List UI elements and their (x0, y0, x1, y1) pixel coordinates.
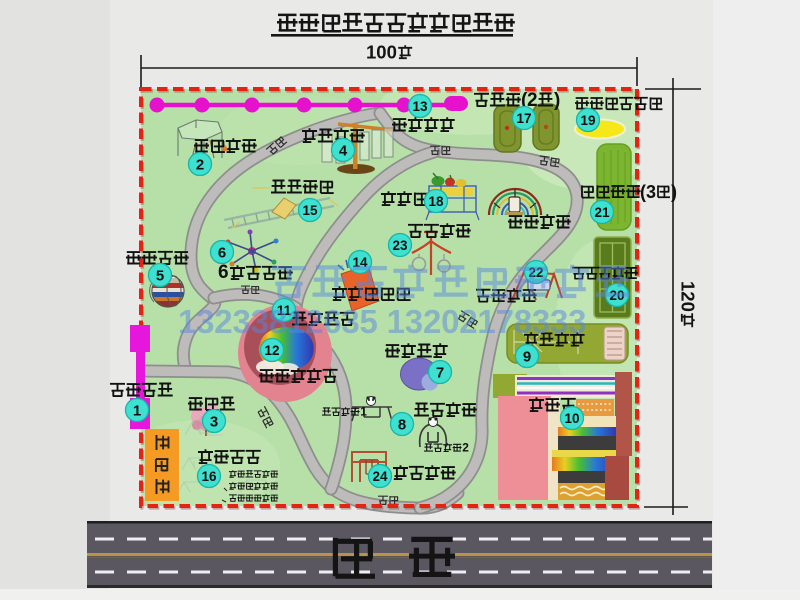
svg-text:): ) (671, 182, 677, 202)
svg-text:19: 19 (580, 113, 595, 128)
svg-text:120: 120 (678, 281, 699, 312)
svg-text:7: 7 (436, 364, 444, 381)
svg-text:4: 4 (339, 142, 348, 159)
svg-text:8: 8 (398, 416, 406, 433)
svg-text:5: 5 (156, 267, 164, 284)
svg-text:100: 100 (366, 41, 397, 62)
svg-text:): ) (554, 90, 560, 111)
svg-text:1: 1 (360, 405, 367, 419)
svg-text:3: 3 (210, 413, 218, 430)
svg-text:2: 2 (196, 156, 204, 173)
svg-text:(3: (3 (640, 182, 656, 202)
svg-text:13233812635 13202178333: 13233812635 13202178333 (178, 303, 586, 340)
svg-text:13: 13 (412, 99, 428, 114)
svg-text:18: 18 (428, 194, 444, 209)
svg-text:23: 23 (392, 238, 408, 253)
svg-text:24: 24 (372, 469, 388, 484)
svg-text:17: 17 (516, 111, 531, 126)
svg-text:9: 9 (523, 348, 531, 365)
svg-text:1: 1 (133, 402, 141, 419)
svg-text:16: 16 (201, 469, 217, 484)
svg-text:6: 6 (218, 244, 226, 261)
svg-text:10: 10 (564, 411, 579, 426)
svg-text:2: 2 (462, 441, 469, 455)
svg-text:12: 12 (264, 343, 279, 358)
svg-text:6: 6 (218, 262, 229, 283)
svg-text:15: 15 (302, 203, 318, 218)
svg-text:21: 21 (594, 205, 610, 220)
